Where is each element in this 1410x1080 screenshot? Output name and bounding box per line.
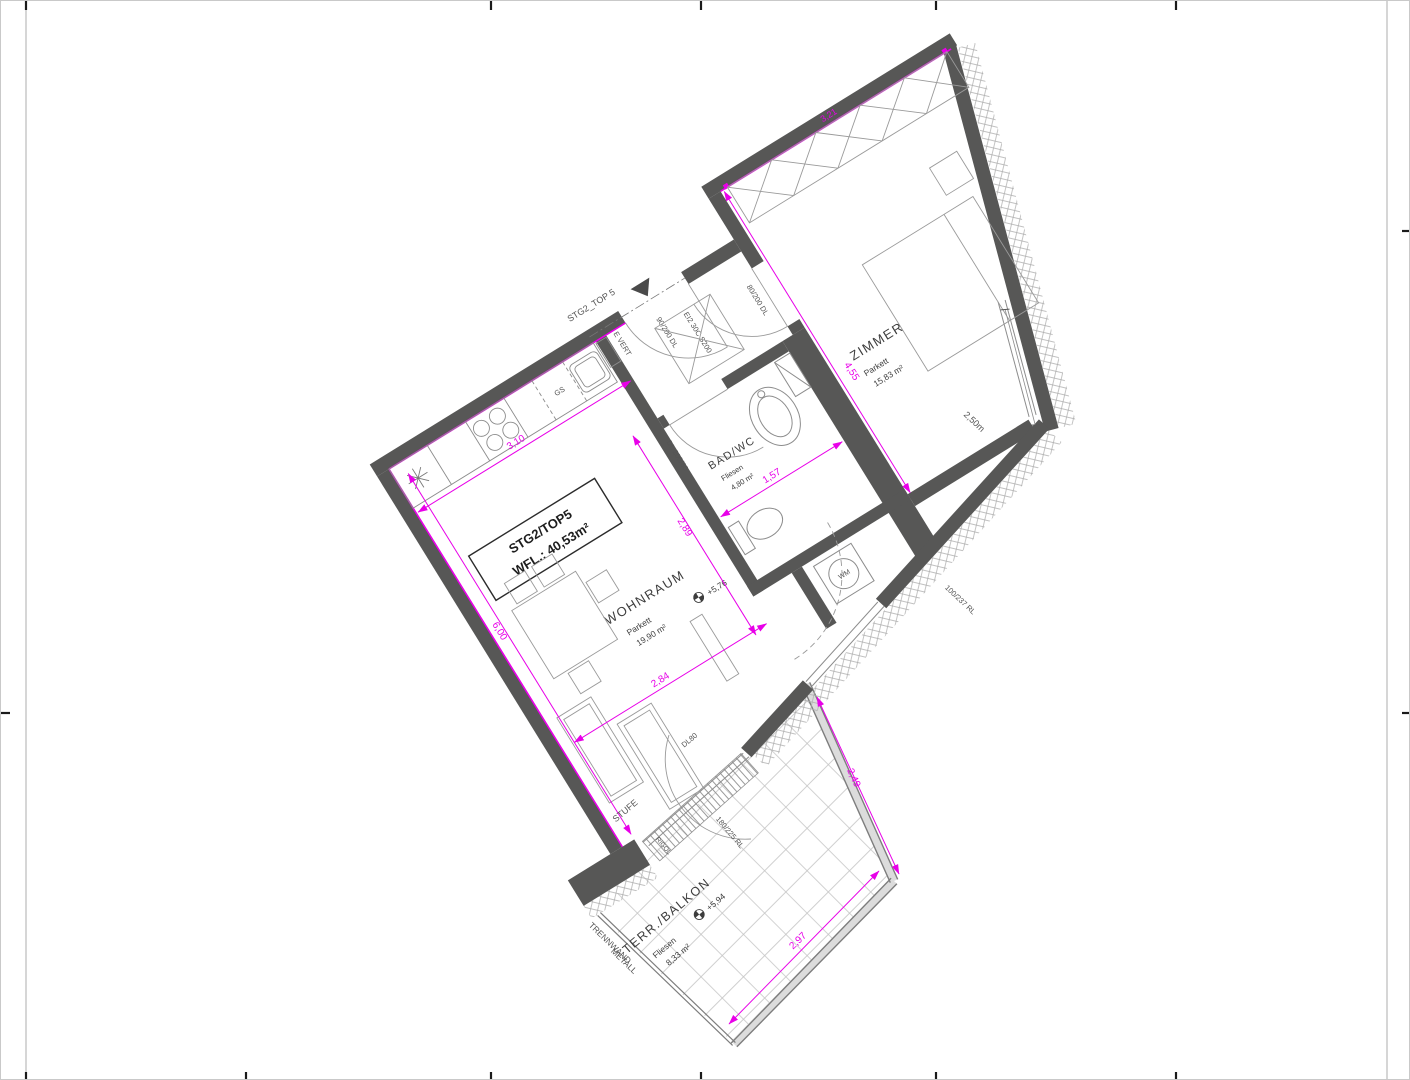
- wall-hall-top: [681, 240, 741, 284]
- dim-289: 2,89: [675, 516, 695, 539]
- bath-door-leaf: [670, 389, 728, 425]
- wall-kitchen-nw: [370, 311, 626, 476]
- dim-line-284: [574, 624, 766, 743]
- wohnraum-labels: WOHNRAUM Parkett 19,90 m² +5,76: [602, 550, 732, 656]
- dim-310: 3,10: [505, 433, 528, 453]
- sideboard: [690, 614, 739, 681]
- chair: [586, 570, 619, 603]
- wall-wm-niche: [792, 567, 837, 629]
- zimmer-door-label: 80/200 DL: [745, 283, 771, 317]
- step-label: STUFE: [611, 797, 640, 824]
- kitchen-counter: [389, 343, 617, 508]
- floorplan-drawing: STG2_TOP 5 90/200 DL EI2 30C S200 E VERT: [1, 1, 1410, 1080]
- cooktop-burner: [486, 405, 508, 427]
- terrace-door-label: DL80: [680, 731, 700, 749]
- floorplan-page: STG2_TOP 5 90/200 DL EI2 30C S200 E VERT: [0, 0, 1410, 1080]
- dim-455: 4,55: [841, 360, 861, 383]
- dishwasher-label: GS: [553, 385, 567, 398]
- dim-157: 1,57: [761, 466, 784, 486]
- wall-bath-se: [747, 489, 911, 596]
- entrance-door-swing: [626, 284, 728, 386]
- cooktop-burner: [484, 431, 506, 453]
- dim-284: 2,84: [649, 670, 672, 690]
- wm-label: WM: [837, 569, 851, 582]
- cooktop-burner: [470, 417, 492, 439]
- chair: [568, 661, 601, 694]
- sofa-chaise: [617, 703, 704, 809]
- sofa-chaise-inner: [624, 710, 697, 802]
- dining-table: [512, 571, 618, 678]
- zimmer-window-dim-label: 2,50m: [962, 409, 987, 433]
- zimmer-name: ZIMMER: [847, 319, 906, 363]
- level-symbol: [692, 591, 706, 605]
- nightstand: [930, 151, 974, 195]
- title-box: STG2/TOP5 WFL.: 40,53m²: [469, 478, 622, 600]
- wc-bowl: [741, 502, 788, 546]
- zimmer-wardrobe: [727, 52, 969, 223]
- wohnraum-level: +5,76: [705, 577, 729, 597]
- side-window-label: 100/237 RL: [943, 583, 977, 616]
